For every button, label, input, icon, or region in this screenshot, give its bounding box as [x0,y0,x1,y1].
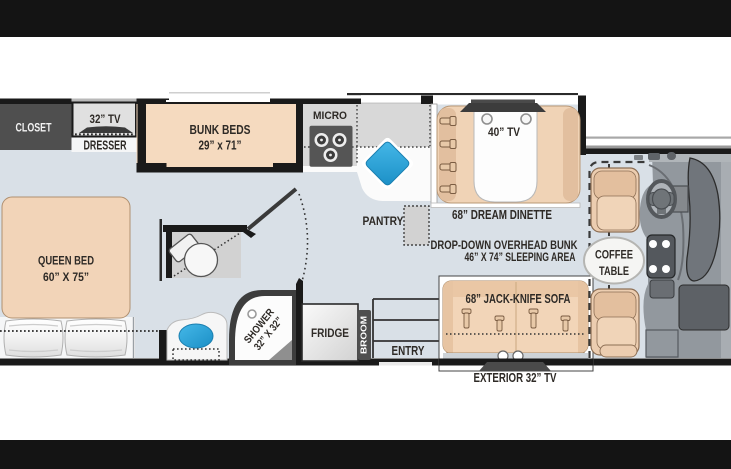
svg-text:TABLE: TABLE [599,266,629,278]
svg-text:68” JACK-KNIFE SOFA: 68” JACK-KNIFE SOFA [466,292,571,306]
svg-text:FRIDGE: FRIDGE [311,326,349,340]
svg-text:BUNK BEDS: BUNK BEDS [190,122,251,137]
svg-text:68” DREAM DINETTE: 68” DREAM DINETTE [452,208,552,222]
svg-text:60” X 75”: 60” X 75” [43,270,89,284]
svg-text:CLOSET: CLOSET [16,123,52,135]
svg-text:29” x 71”: 29” x 71” [199,138,242,153]
svg-text:46” X 74” SLEEPING AREA: 46” X 74” SLEEPING AREA [465,250,576,264]
svg-text:EXTERIOR 32” TV: EXTERIOR 32” TV [474,371,558,385]
svg-text:QUEEN BED: QUEEN BED [38,254,94,268]
svg-text:40” TV: 40” TV [488,127,520,139]
svg-text:BROOM: BROOM [360,316,369,354]
svg-text:DRESSER: DRESSER [84,139,127,153]
svg-text:32” TV: 32” TV [90,112,121,126]
svg-text:PANTRY: PANTRY [363,214,404,228]
svg-text:COFFEE: COFFEE [595,250,633,262]
svg-text:MICRO: MICRO [313,110,347,122]
svg-text:ENTRY: ENTRY [392,344,426,358]
